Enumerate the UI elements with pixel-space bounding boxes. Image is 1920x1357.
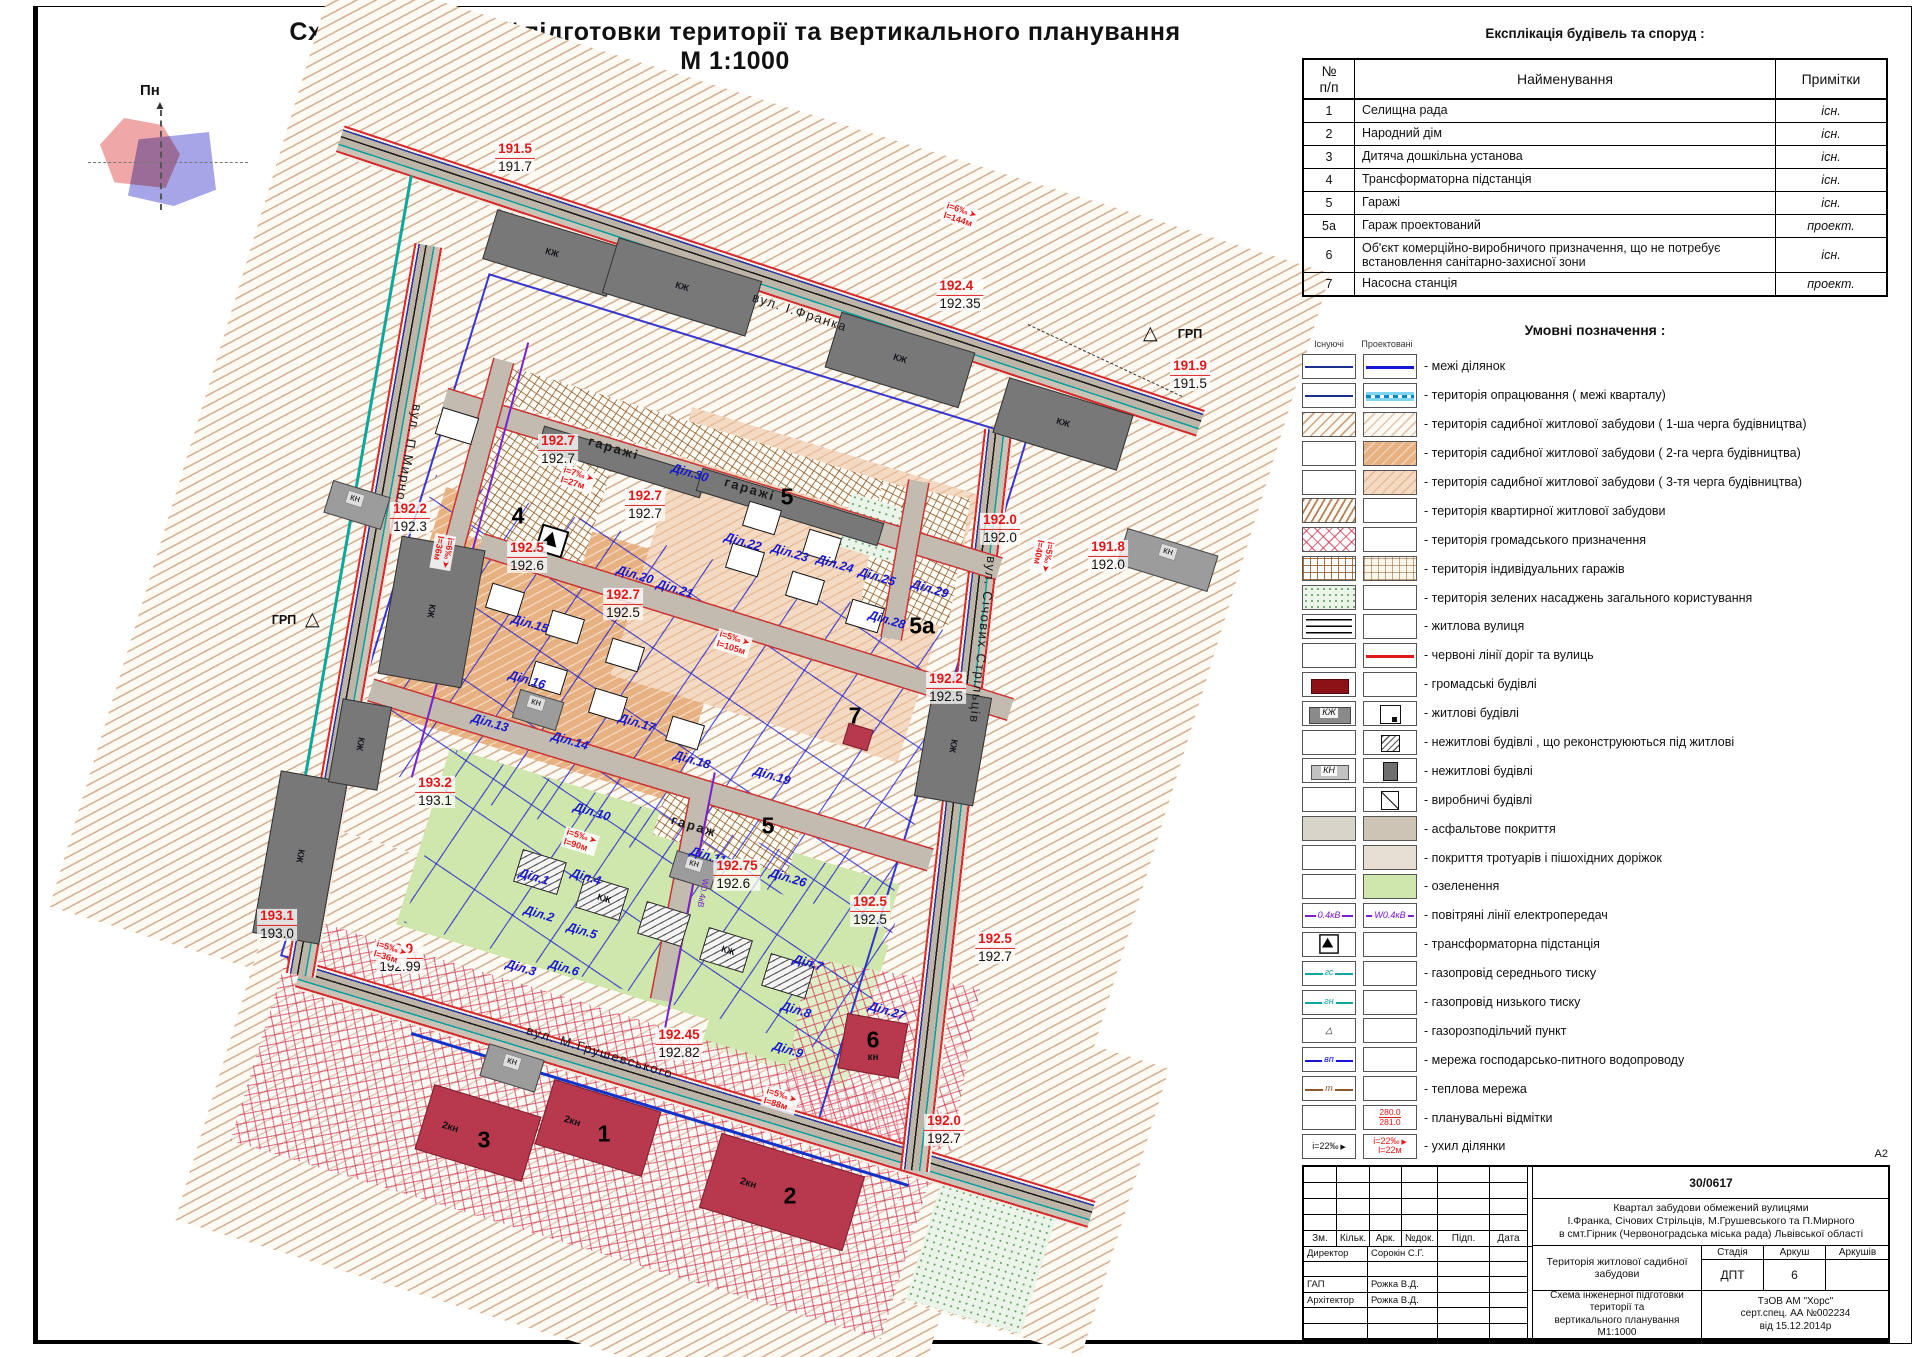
- legend-item: гн- газопровід низького тиску: [1302, 988, 1888, 1017]
- legend-item-label: - житлова вулиця: [1424, 619, 1888, 633]
- role-signature: [1438, 1324, 1490, 1340]
- legend-item: т- теплова мережа: [1302, 1074, 1888, 1103]
- explication-row: 4Трансформаторна підстанціяісн.: [1304, 168, 1886, 191]
- legend-item: - територія індивідуальних гаражів: [1302, 554, 1888, 583]
- legend-swatch-existing: [1302, 672, 1356, 697]
- revision-col-label: Арк.: [1370, 1231, 1402, 1246]
- legend-swatch-projected: [1363, 1076, 1417, 1101]
- revision-cell: [1337, 1167, 1370, 1183]
- legend-item-label: - територія садибної житлової забудови (…: [1424, 475, 1888, 489]
- legend-item-label: - мережа господарсько-питного водопровод…: [1424, 1053, 1888, 1067]
- revision-grid: [1304, 1167, 1532, 1231]
- revision-cell: [1438, 1167, 1490, 1183]
- legend-item-label: - територія громадського призначення: [1424, 533, 1888, 547]
- plan-label: КЖ: [354, 737, 365, 752]
- north-dashed-axis: [88, 162, 248, 163]
- revision-cell: [1438, 1215, 1490, 1231]
- frame-left-bar: [33, 6, 38, 1344]
- grp-label: ГРП: [272, 614, 296, 627]
- legend-item: - межі ділянок: [1302, 352, 1888, 381]
- legend-item: - виробничі будівлі: [1302, 785, 1888, 814]
- elevation-mark: 192.5192.5: [850, 895, 890, 927]
- firm-info: ТзОВ АМ "Хорс" серт.спец. АА №002234 від…: [1701, 1291, 1889, 1338]
- revision-cell: [1370, 1183, 1402, 1199]
- revision-cell: [1337, 1183, 1370, 1199]
- frame-bottom-bar: [36, 1340, 1890, 1344]
- legend-item: і=22‰і=22‰l=22м- ухил ділянки: [1302, 1132, 1888, 1161]
- legend-item-label: - теплова мережа: [1424, 1082, 1888, 1096]
- revision-cell: [1370, 1167, 1402, 1183]
- explication-cell-name: Гараж проектований: [1354, 215, 1775, 237]
- building-number-1: 1: [598, 1123, 611, 1146]
- stage-label: Стадія: [1702, 1245, 1764, 1259]
- legend-item: - громадські будівлі: [1302, 670, 1888, 699]
- legend-swatch-projected: [1363, 585, 1417, 610]
- explication-cell-name: Трансформаторна підстанція: [1354, 169, 1775, 191]
- legend-item: - покриття тротуарів і пішохідних доріжо…: [1302, 843, 1888, 872]
- explication-cell-note: існ.: [1775, 100, 1886, 122]
- role-date: [1490, 1308, 1528, 1324]
- legend-swatch-projected: [1363, 932, 1417, 957]
- legend-swatch-existing: КЖ: [1302, 701, 1356, 726]
- legend-swatch-existing: [1302, 383, 1356, 408]
- legend-swatch-existing: [1302, 498, 1356, 523]
- legend-col-projected: Проектовані: [1356, 339, 1418, 349]
- legend-item-label: - територія опрацювання ( межі кварталу): [1424, 388, 1888, 402]
- legend-swatch-projected: [1363, 990, 1417, 1015]
- elevation-mark: 192.7192.7: [625, 489, 665, 521]
- explication-cell-note: існ.: [1775, 192, 1886, 214]
- legend-item-label: - житлові будівлі: [1424, 706, 1888, 720]
- building-number-5: 5: [781, 486, 794, 509]
- legend-title: Умовні позначення :: [1302, 322, 1888, 338]
- building-number-5: 5: [762, 815, 775, 838]
- elevation-mark: 192.0192.0: [980, 513, 1020, 545]
- legend-swatch-projected: [1363, 412, 1417, 437]
- plan-label: КЖ: [425, 604, 436, 619]
- revision-cell: [1402, 1215, 1438, 1231]
- legend-item: - червоні лінії доріг та вулиць: [1302, 641, 1888, 670]
- explication-cell-note: існ.: [1775, 238, 1886, 272]
- legend-swatch-existing: вп: [1302, 1047, 1356, 1072]
- role-name: [1368, 1324, 1438, 1340]
- revision-col-label: Зм.: [1304, 1231, 1337, 1246]
- legend-item-label: - повітряні лінії електропередач: [1424, 908, 1888, 922]
- legend-item: - територія опрацювання ( межі кварталу): [1302, 381, 1888, 410]
- legend-item-label: - нежитлові будівлі , що реконструюються…: [1424, 735, 1888, 749]
- legend-swatch-projected: [1363, 961, 1417, 986]
- sheets-label: Аркушів: [1826, 1245, 1890, 1259]
- elevation-mark: 192.45192.82: [655, 1028, 702, 1060]
- legend-item: - територія садибної житлової забудови (…: [1302, 410, 1888, 439]
- role-title: ГАП: [1304, 1277, 1368, 1293]
- legend-item-label: - нежитлові будівлі: [1424, 764, 1888, 778]
- legend-item-label: - асфальтове покриття: [1424, 822, 1888, 836]
- explication-cell-name: Насосна станція: [1354, 273, 1775, 295]
- explication-cell-num: 5: [1304, 192, 1354, 214]
- legend-swatch-existing: т: [1302, 1076, 1356, 1101]
- legend-item: 280.0281.0- планувальні відмітки: [1302, 1103, 1888, 1132]
- revision-cell: [1438, 1183, 1490, 1199]
- legend-item-label: - територія зелених насаджень загального…: [1424, 591, 1888, 605]
- explication-cell-num: 1: [1304, 100, 1354, 122]
- legend-swatch-projected: і=22‰l=22м: [1363, 1134, 1417, 1159]
- legend-item: △- газорозподільчий пункт: [1302, 1016, 1888, 1045]
- role-signature: [1438, 1293, 1490, 1309]
- legend-item-label: - газопровід низького тиску: [1424, 995, 1888, 1009]
- role-title: [1304, 1308, 1368, 1324]
- legend-swatch-projected: [1363, 614, 1417, 639]
- role-date: [1490, 1262, 1528, 1278]
- explication-cell-note: існ.: [1775, 123, 1886, 145]
- legend-swatch-projected: W0.4кВ: [1363, 903, 1417, 928]
- legend-swatch-existing: [1302, 816, 1356, 841]
- elevation-mark: 192.5192.6: [507, 541, 547, 573]
- explication-table: № п/пНайменуванняПримітки1Селищна радаіс…: [1302, 58, 1888, 297]
- legend-item: - територія громадського призначення: [1302, 525, 1888, 554]
- role-title: [1304, 1324, 1368, 1340]
- building-number-5a: 5а: [909, 615, 935, 638]
- explication-cell-note: проект.: [1775, 273, 1886, 295]
- legend-item-label: - межі ділянок: [1424, 359, 1888, 373]
- legend-swatch-projected: [1363, 556, 1417, 581]
- legend-swatch-existing: [1302, 874, 1356, 899]
- legend-item-label: - планувальні відмітки: [1424, 1111, 1888, 1125]
- explication-cell-num: 5а: [1304, 215, 1354, 237]
- role-date: [1490, 1277, 1528, 1293]
- role-signature: [1438, 1262, 1490, 1278]
- plan-label: кн: [867, 1053, 878, 1063]
- elevation-mark: 193.1193.0: [257, 909, 297, 941]
- grp-label: ГРП: [1178, 328, 1202, 341]
- legend-item-label: - червоні лінії доріг та вулиць: [1424, 648, 1888, 662]
- legend-item: - нежитлові будівлі , що реконструюються…: [1302, 728, 1888, 757]
- legend-swatch-existing: КН: [1302, 758, 1356, 783]
- revision-cell: [1337, 1199, 1370, 1215]
- elevation-mark: 192.2192.5: [926, 672, 966, 704]
- role-name: [1368, 1262, 1438, 1278]
- legend-swatch-existing: [1302, 614, 1356, 639]
- elevation-mark: 191.5191.7: [495, 142, 535, 174]
- legend-item: - територія садибної житлової забудови (…: [1302, 468, 1888, 497]
- role-name: [1368, 1308, 1438, 1324]
- title-block: Зм.Кільк.Арк.№док.Підп.Дата ДиректорСоро…: [1302, 1165, 1890, 1340]
- legend-swatch-projected: 280.0281.0: [1363, 1105, 1417, 1130]
- role-name: Рожка В.Д.: [1368, 1277, 1438, 1293]
- legend-swatch-projected: [1363, 498, 1417, 523]
- explication-cell-num: 7: [1304, 273, 1354, 295]
- legend-item: вп- мережа господарсько-питного водопров…: [1302, 1045, 1888, 1074]
- role-date: [1490, 1324, 1528, 1340]
- explication-cell-note: існ.: [1775, 169, 1886, 191]
- explication-row: 2Народний дімісн.: [1304, 122, 1886, 145]
- legend-item-label: - газопровід середнього тиску: [1424, 966, 1888, 980]
- signature-rows: ДиректорСорокін С.Г.ГАПРожка В.Д.Архітек…: [1304, 1246, 1532, 1340]
- explication-cell-name: Об'єкт комерційно-виробничого призначенн…: [1354, 238, 1775, 272]
- legend-item-label: - територія квартирної житлової забудови: [1424, 504, 1888, 518]
- role-title: Директор: [1304, 1246, 1368, 1262]
- elevation-mark: 192.4192.35: [936, 279, 983, 311]
- explication-row: 7Насосна станціяпроект.: [1304, 272, 1886, 295]
- legend-swatch-existing: [1302, 932, 1356, 957]
- legend-swatch-existing: [1302, 470, 1356, 495]
- building-number-2: 2: [784, 1185, 797, 1208]
- legend-swatch-existing: [1302, 354, 1356, 379]
- drawing-sheet: Схема інженерної підготовки території та…: [0, 0, 1920, 1357]
- legend-item-label: - громадські будівлі: [1424, 677, 1888, 691]
- role-signature: [1438, 1246, 1490, 1262]
- north-arrowhead-icon: ▲: [154, 98, 166, 112]
- explication-row: 5аГараж проектованийпроект.: [1304, 214, 1886, 237]
- legend-item: - озеленення: [1302, 872, 1888, 901]
- legend-item-label: - газорозподільчий пункт: [1424, 1024, 1888, 1038]
- legend-item-label: - покриття тротуарів і пішохідних доріжо…: [1424, 851, 1888, 865]
- explication-cell-num: 2: [1304, 123, 1354, 145]
- explication-cell-name: Дитяча дошкільна установа: [1354, 146, 1775, 168]
- legend-item: - територія квартирної житлової забудови: [1302, 496, 1888, 525]
- revision-col-label: Дата: [1490, 1231, 1528, 1246]
- title-block-right: 30/0617 Квартал забудови обмежений вулиц…: [1532, 1167, 1889, 1338]
- explication-header-row: № п/пНайменуванняПримітки: [1304, 60, 1886, 99]
- legend-item: КН- нежитлові будівлі: [1302, 756, 1888, 785]
- role-signature: [1438, 1308, 1490, 1324]
- revision-cell: [1402, 1183, 1438, 1199]
- explication-row: 1Селищна радаісн.: [1304, 99, 1886, 122]
- legend-swatch-projected: [1363, 672, 1417, 697]
- elevation-mark: 192.2192.3: [390, 502, 430, 534]
- legend-item: - житлова вулиця: [1302, 612, 1888, 641]
- explication-col-note: Примітки: [1775, 60, 1886, 98]
- plan-label: КЖ: [294, 849, 305, 864]
- revision-cell: [1438, 1199, 1490, 1215]
- legend-swatch-existing: [1302, 441, 1356, 466]
- role-title: Архітектор: [1304, 1293, 1368, 1309]
- legend-swatch-existing: [1302, 787, 1356, 812]
- legend-item-label: - ухил ділянки: [1424, 1139, 1888, 1153]
- legend-item-label: - виробничі будівлі: [1424, 793, 1888, 807]
- legend-swatch-projected: [1363, 816, 1417, 841]
- elevation-mark: 192.5192.7: [975, 932, 1015, 964]
- legend-swatch-projected: [1363, 758, 1417, 783]
- elevation-mark: 192.7192.7: [538, 434, 578, 466]
- legend-item-label: - територія садибної житлової забудови (…: [1424, 446, 1888, 460]
- legend-item-label: - територія індивідуальних гаражів: [1424, 562, 1888, 576]
- revision-col-label: Кільк.: [1337, 1231, 1370, 1246]
- legend-swatch-existing: △: [1302, 1018, 1356, 1043]
- role-signature: [1438, 1277, 1490, 1293]
- sheet-label: Аркуш: [1764, 1245, 1826, 1259]
- legend-item: КЖ- житлові будівлі: [1302, 699, 1888, 728]
- legend-item: - територія зелених насаджень загального…: [1302, 583, 1888, 612]
- explication-row: 3Дитяча дошкільна установаісн.: [1304, 145, 1886, 168]
- legend-swatch-existing: [1302, 1105, 1356, 1130]
- explication-cell-num: 6: [1304, 238, 1354, 272]
- building-number-6: 6: [867, 1029, 880, 1052]
- legend-item: - трансформаторна підстанція: [1302, 930, 1888, 959]
- revision-cell: [1490, 1167, 1528, 1183]
- north-arrow-icon: [160, 110, 162, 210]
- legend-swatch-projected: [1363, 383, 1417, 408]
- explication-cell-num: 3: [1304, 146, 1354, 168]
- legend-swatch-existing: [1302, 412, 1356, 437]
- legend-swatch-existing: [1302, 845, 1356, 870]
- legend-swatch-existing: [1302, 643, 1356, 668]
- revision-cell: [1370, 1215, 1402, 1231]
- revision-header: Зм.Кільк.Арк.№док.Підп.Дата: [1304, 1231, 1532, 1247]
- revision-cell: [1402, 1199, 1438, 1215]
- stage-value: ДПТ: [1702, 1260, 1764, 1290]
- plan-label: КЖ: [947, 739, 958, 754]
- revision-cell: [1337, 1215, 1370, 1231]
- explication-cell-name: Народний дім: [1354, 123, 1775, 145]
- legend-col-existing: Існуючі: [1302, 339, 1356, 349]
- north-label: Пн: [140, 82, 160, 99]
- explication-row: 6Об'єкт комерційно-виробничого призначен…: [1304, 237, 1886, 272]
- elevation-mark: 192.7192.5: [603, 588, 643, 620]
- legend-swatch-existing: гс: [1302, 961, 1356, 986]
- legend-swatch-projected: [1363, 730, 1417, 755]
- sheets-value: [1826, 1260, 1890, 1290]
- revision-cell: [1402, 1167, 1438, 1183]
- legend-swatch-projected: [1363, 354, 1417, 379]
- document-number: 30/0617: [1533, 1167, 1889, 1199]
- project-description: Квартал забудови обмежений вулицями І.Фр…: [1533, 1198, 1889, 1246]
- building-number-4: 4: [512, 505, 525, 528]
- drawing-name: Схема інженерної підготовки території та…: [1533, 1291, 1701, 1338]
- explication-row: 5Гаражіісн.: [1304, 191, 1886, 214]
- explication-cell-note: існ.: [1775, 146, 1886, 168]
- revision-cell: [1304, 1167, 1337, 1183]
- wind-rose-shape-blue: [128, 132, 216, 206]
- explication-cell-num: 4: [1304, 169, 1354, 191]
- revision-cell: [1370, 1199, 1402, 1215]
- legend-swatch-projected: [1363, 1047, 1417, 1072]
- grp-triangle-icon: △: [1143, 324, 1158, 343]
- legend-swatch-projected: [1363, 470, 1417, 495]
- legend-swatch-projected: [1363, 787, 1417, 812]
- north-indicator: ▲ Пн: [88, 50, 258, 210]
- legend-item-label: - озеленення: [1424, 879, 1888, 893]
- legend-swatch-projected: [1363, 441, 1417, 466]
- object-name: Територія житлової садибної забудови: [1533, 1245, 1701, 1291]
- legend-item: - територія садибної житлової забудови (…: [1302, 439, 1888, 468]
- legend-swatch-projected: [1363, 527, 1417, 552]
- legend-item: 0.4кВW0.4кВ- повітряні лінії електропере…: [1302, 901, 1888, 930]
- role-name: Рожка В.Д.: [1368, 1293, 1438, 1309]
- legend-swatch-projected: [1363, 701, 1417, 726]
- legend-swatch-existing: гн: [1302, 990, 1356, 1015]
- explication-col-name: Найменування: [1354, 60, 1775, 98]
- elevation-mark: 193.2193.1: [415, 776, 455, 808]
- legend-swatch-existing: [1302, 556, 1356, 581]
- role-date: [1490, 1246, 1528, 1262]
- building-number-7: 7: [849, 705, 862, 728]
- legend-swatch-existing: [1302, 527, 1356, 552]
- revision-cell: [1304, 1215, 1337, 1231]
- legend-swatch-projected: [1363, 845, 1417, 870]
- elevation-mark: 192.0192.7: [924, 1114, 964, 1146]
- revision-cell: [1304, 1183, 1337, 1199]
- revision-col-label: №док.: [1402, 1231, 1438, 1246]
- explication-cell-name: Селищна рада: [1354, 100, 1775, 122]
- role-title: [1304, 1262, 1368, 1278]
- legend-swatch-existing: 0.4кВ: [1302, 903, 1356, 928]
- revision-cell: [1490, 1199, 1528, 1215]
- sheet-value: 6: [1764, 1260, 1826, 1290]
- role-date: [1490, 1293, 1528, 1309]
- elevation-mark: 192.75192.6: [713, 859, 760, 891]
- explication-title: Експлікація будівель та споруд :: [1302, 26, 1888, 41]
- legend-item: - асфальтове покриття: [1302, 814, 1888, 843]
- explication-cell-name: Гаражі: [1354, 192, 1775, 214]
- explication-cell-note: проект.: [1775, 215, 1886, 237]
- revision-cell: [1490, 1183, 1528, 1199]
- revision-cell: [1304, 1199, 1337, 1215]
- elevation-mark: 191.9191.5: [1170, 359, 1210, 391]
- legend-item-label: - територія садибної житлової забудови (…: [1424, 417, 1888, 431]
- role-name: Сорокін С.Г.: [1368, 1246, 1438, 1262]
- revision-cell: [1490, 1215, 1528, 1231]
- legend-item: гс- газопровід середнього тиску: [1302, 959, 1888, 988]
- sheet-format-label: А2: [1846, 1148, 1888, 1160]
- building-number-3: 3: [478, 1129, 491, 1152]
- explication-col-num: № п/п: [1304, 60, 1354, 98]
- legend-item-label: - трансформаторна підстанція: [1424, 937, 1888, 951]
- legend-swatch-projected: [1363, 874, 1417, 899]
- legend-swatch-existing: [1302, 730, 1356, 755]
- legend-swatch-projected: [1363, 1018, 1417, 1043]
- legend-swatch-projected: [1363, 643, 1417, 668]
- elevation-mark: 191.8192.0: [1088, 540, 1128, 572]
- revision-col-label: Підп.: [1438, 1231, 1490, 1246]
- legend-items: - межі ділянок- територія опрацювання ( …: [1302, 352, 1888, 1161]
- grp-triangle-icon: △: [305, 610, 320, 629]
- legend-swatch-existing: і=22‰: [1302, 1134, 1356, 1159]
- legend-swatch-existing: [1302, 585, 1356, 610]
